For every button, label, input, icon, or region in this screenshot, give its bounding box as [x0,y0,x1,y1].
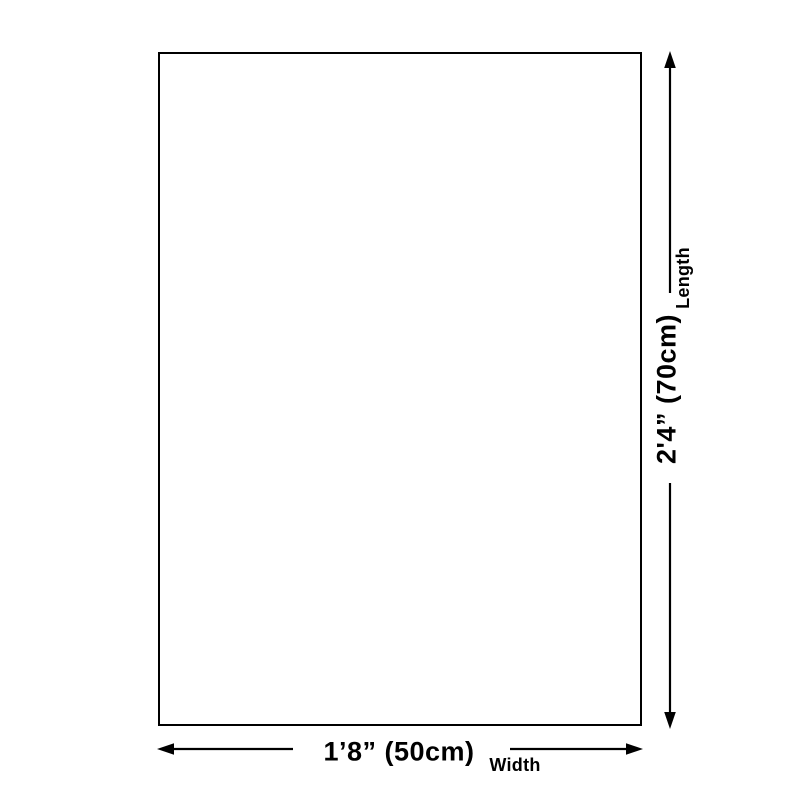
length-arrowhead-down-icon [664,712,676,729]
length-label: Length [674,247,692,309]
product-outline [158,52,642,726]
width-arrowhead-right-icon [626,743,643,755]
width-value: 1’8” (50cm) [323,739,474,766]
width-label: Width [489,756,540,774]
width-arrowhead-left-icon [157,743,174,755]
size-diagram: 2'4” (70cm) Length 1’8” (50cm) Width [0,0,800,800]
length-value: 2'4” (70cm) [654,314,681,464]
length-arrowhead-up-icon [664,51,676,68]
